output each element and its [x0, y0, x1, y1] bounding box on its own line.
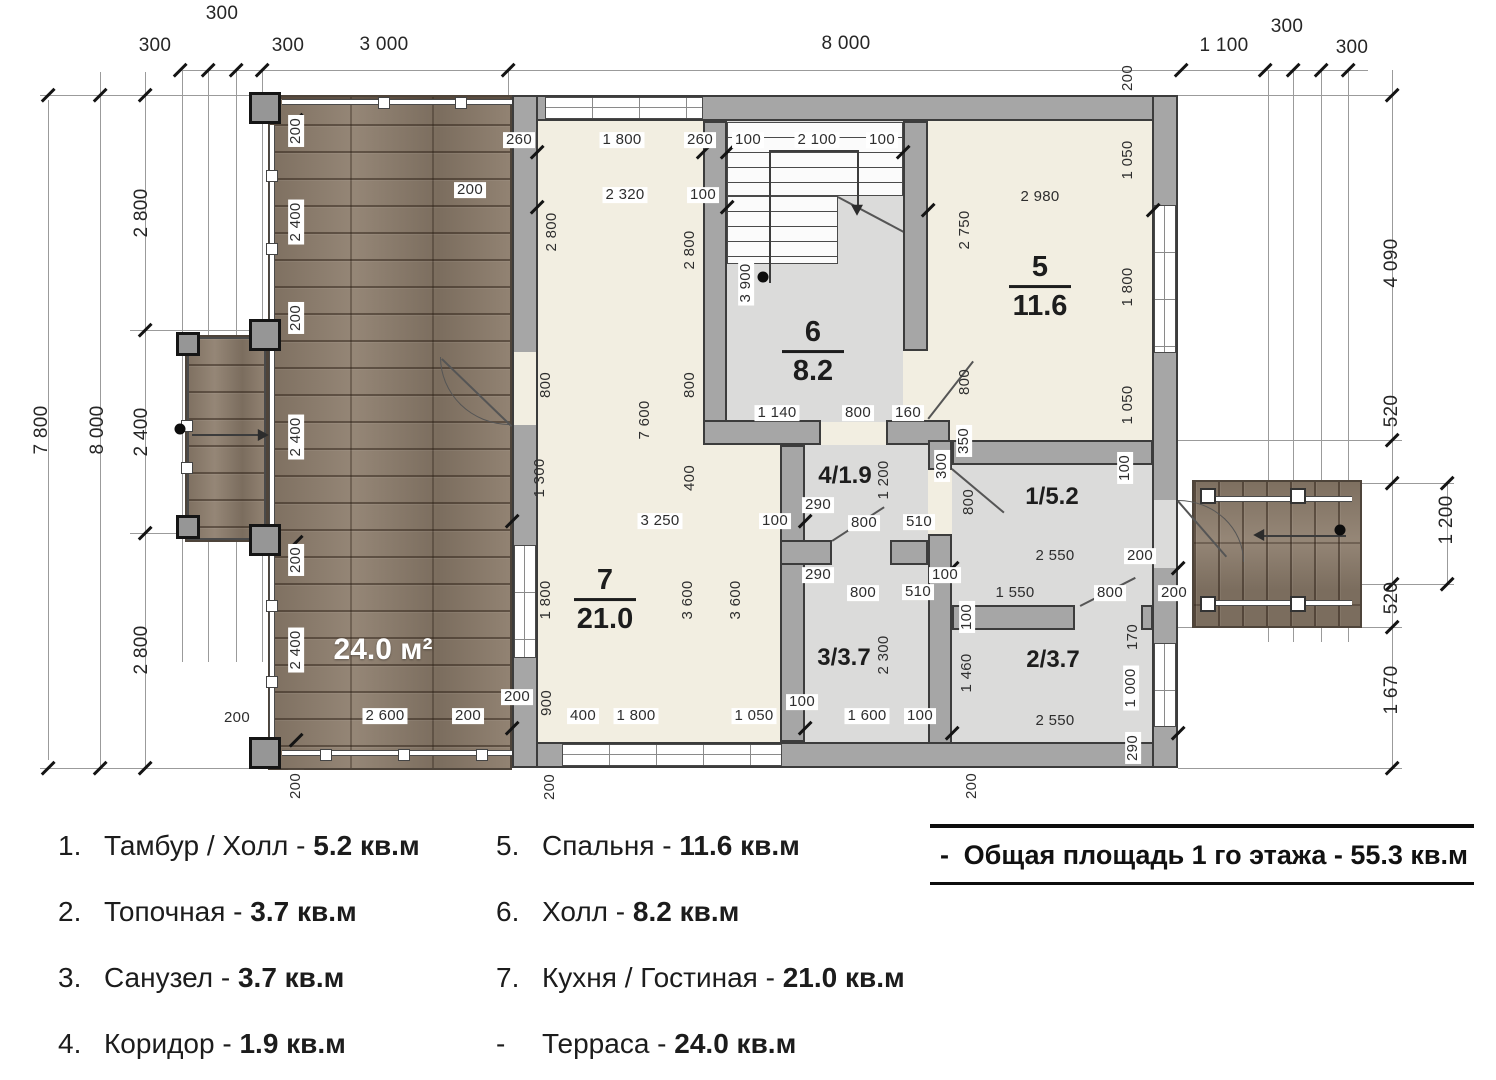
- legend-item-name: Холл -: [542, 896, 633, 927]
- room-3-sanuzel: 3/3.7: [817, 644, 870, 672]
- dim-label: 350: [956, 425, 972, 457]
- dim-label: 1 800: [1120, 267, 1136, 306]
- railing: [187, 337, 266, 540]
- dim-label: 2 600: [362, 708, 407, 724]
- total-area-box: - Общая площадь 1 го этажа - 55.3 кв.м: [930, 824, 1474, 885]
- legend-item-name: Топочная -: [104, 896, 250, 927]
- dim-label: 290: [802, 497, 834, 513]
- dim-label: 3 250: [637, 513, 682, 529]
- dim-label: 2 800: [544, 212, 560, 251]
- stairs: [727, 196, 838, 264]
- deck-post: [176, 332, 200, 356]
- dim-label: 1 550: [995, 585, 1034, 601]
- dim-label: 8 000: [821, 34, 870, 54]
- wall: [512, 95, 538, 768]
- stair-arrow-line: [1262, 535, 1346, 537]
- dim-label: 7 800: [32, 405, 52, 454]
- dim-label: 2 400: [288, 627, 304, 672]
- legend-item-area: 5.2 кв.м: [313, 830, 419, 861]
- dim-label: 1 050: [1120, 140, 1136, 179]
- dim-label: 200: [454, 182, 486, 198]
- dim-label: 3 600: [680, 580, 696, 619]
- dim-label: 2 100: [794, 132, 839, 148]
- dim-label: 1 600: [844, 708, 889, 724]
- dim-label: 100: [959, 601, 975, 633]
- railing-post: [1290, 488, 1306, 504]
- dim-label: 2 550: [1035, 713, 1074, 729]
- deck-post: [249, 737, 281, 769]
- dim-label: 200: [542, 774, 558, 800]
- dim-label: 800: [842, 405, 874, 421]
- wall: [703, 121, 727, 445]
- dim-label: 200: [288, 544, 304, 576]
- deck-post: [249, 319, 281, 351]
- dimension-line: [178, 70, 1368, 71]
- direction-dot: [1335, 525, 1346, 536]
- railing-baluster: [476, 749, 488, 761]
- dim-label: 2 400: [132, 407, 152, 456]
- dim-label: 200: [1124, 548, 1156, 564]
- dim-label: 2 320: [602, 187, 647, 203]
- railing: [269, 125, 275, 737]
- railing-baluster: [266, 676, 278, 688]
- railing-baluster: [398, 749, 410, 761]
- dim-label: 200: [288, 770, 304, 802]
- dim-label: 200: [288, 115, 304, 147]
- dim-label: 100: [866, 132, 898, 148]
- legend-item-area: 3.7 кв.м: [238, 962, 344, 993]
- legend-item-number: 6.: [496, 896, 542, 928]
- room-number: 6: [782, 317, 844, 347]
- room-area: 11.6: [1009, 292, 1071, 322]
- fraction-bar: [782, 351, 844, 354]
- dim-label: 8 000: [88, 405, 108, 454]
- railing: [1200, 496, 1352, 502]
- dim-label: 800: [682, 372, 698, 398]
- dim-label: 200: [452, 708, 484, 724]
- dim-label: 2 800: [132, 625, 152, 674]
- wall: [703, 420, 821, 445]
- dim-label: 260: [684, 132, 716, 148]
- stair-arrow-line: [769, 150, 858, 152]
- dim-label: 160: [892, 405, 924, 421]
- dim-label: 4 090: [1382, 238, 1402, 287]
- railing-baluster: [181, 462, 193, 474]
- dim-label: 2 400: [288, 414, 304, 459]
- railing: [1200, 600, 1352, 606]
- window: [1154, 643, 1176, 727]
- legend-item-area: 3.7 кв.м: [250, 896, 356, 927]
- dim-label: 100: [759, 513, 791, 529]
- railing-baluster: [320, 749, 332, 761]
- window: [514, 545, 536, 658]
- railing-baluster: [378, 97, 390, 109]
- dim-label: 3 600: [728, 580, 744, 619]
- arrow-down-icon: [851, 205, 863, 216]
- window: [562, 744, 782, 766]
- dim-label: 100: [687, 187, 719, 203]
- direction-dot: [758, 272, 769, 283]
- dim-label: 1 000: [1123, 665, 1139, 710]
- railing-baluster: [266, 243, 278, 255]
- total-area-text: Общая площадь 1 го этажа - 55.3 кв.м: [964, 840, 1468, 871]
- wall: [903, 121, 928, 351]
- legend-item-number: 5.: [496, 830, 542, 862]
- room-7-kuhnya-gostinaya: 721.0: [574, 565, 636, 635]
- dim-label: 1 050: [731, 708, 776, 724]
- dim-label: 1 460: [959, 653, 975, 692]
- dim-label: 2 980: [1020, 189, 1059, 205]
- legend-item: 5.Спальня - 11.6 кв.м: [496, 830, 800, 862]
- legend-item: -Терраса - 24.0 кв.м: [496, 1028, 796, 1060]
- dim-label: 1 200: [876, 460, 892, 499]
- legend-item-name: Спальня -: [542, 830, 679, 861]
- dimension-line: [1178, 440, 1402, 441]
- railing-post: [1200, 596, 1216, 612]
- stair-arrow-line: [769, 150, 771, 283]
- room-area: 8.2: [782, 357, 844, 387]
- floor-plan-drawing: 3003003003 0008 0001 1003003007 8008 000…: [0, 0, 1496, 810]
- railing-post: [1290, 596, 1306, 612]
- dimension-line: [40, 768, 270, 769]
- dim-label: 2 400: [288, 199, 304, 244]
- dim-label: 1 050: [1120, 385, 1136, 424]
- railing: [282, 99, 512, 105]
- door-opening: [1154, 500, 1176, 568]
- fraction-bar: [1009, 286, 1071, 289]
- dimension-line: [508, 70, 509, 98]
- dim-label: 1 800: [613, 708, 658, 724]
- dim-label: 1 670: [1382, 665, 1402, 714]
- dim-label: 300: [1271, 17, 1304, 37]
- railing-baluster: [266, 170, 278, 182]
- legend-item-area: 8.2 кв.м: [633, 896, 739, 927]
- legend-item-area: 24.0 кв.м: [674, 1028, 796, 1059]
- dim-label: 800: [847, 585, 879, 601]
- dimension-line: [1178, 768, 1402, 769]
- dim-label: 200: [964, 773, 980, 799]
- dim-label: 900: [539, 690, 555, 716]
- dim-label: 800: [538, 372, 554, 398]
- dim-label: 520: [1382, 582, 1402, 615]
- room-1-tambur-hall: 1/5.2: [1025, 483, 1078, 511]
- legend-item-number: 2.: [58, 896, 104, 928]
- deck-post: [249, 92, 281, 124]
- room-6-hall: 68.2: [782, 317, 844, 387]
- terrace-area-label: 24.0 м²: [334, 633, 433, 667]
- railing-baluster: [455, 97, 467, 109]
- dim-label: 3 000: [359, 35, 408, 55]
- dim-label: 200: [224, 710, 250, 726]
- dim-label: 800: [1094, 585, 1126, 601]
- direction-dot: [175, 424, 186, 435]
- legend-item-number: 7.: [496, 962, 542, 994]
- dim-label: 800: [957, 369, 973, 395]
- legend-item: 6.Холл - 8.2 кв.м: [496, 896, 739, 928]
- legend-item: 4.Коридор - 1.9 кв.м: [58, 1028, 346, 1060]
- legend-item-area: 21.0 кв.м: [783, 962, 905, 993]
- floor-plan-sheet: 3003003003 0008 0001 1003003007 8008 000…: [0, 0, 1496, 1080]
- dim-label: 300: [934, 450, 950, 482]
- dim-label: 400: [682, 465, 698, 491]
- dim-label: 800: [961, 489, 977, 515]
- dim-label: 300: [1336, 38, 1369, 58]
- dim-label: 510: [903, 514, 935, 530]
- dim-label: 300: [272, 36, 305, 56]
- dim-label: 510: [902, 584, 934, 600]
- room-number: 5: [1009, 252, 1071, 282]
- legend-item: 7.Кухня / Гостиная - 21.0 кв.м: [496, 962, 905, 994]
- dim-label: 200: [501, 689, 533, 705]
- dim-label: 100: [732, 132, 764, 148]
- room-5-spalnya: 511.6: [1009, 252, 1071, 322]
- dim-label: 1 200: [1437, 495, 1457, 544]
- room-number: 7: [574, 565, 636, 595]
- dimension-line: [1362, 483, 1454, 484]
- room-4-koridor: 4/1.9: [818, 462, 871, 490]
- deck-post: [249, 524, 281, 556]
- legend-item-name: Тамбур / Холл -: [104, 830, 313, 861]
- dim-label: 100: [1117, 452, 1133, 484]
- dim-label: 2 800: [132, 188, 152, 237]
- dim-label: 1 800: [599, 132, 644, 148]
- wall: [780, 540, 832, 565]
- legend-item-name: Терраса -: [542, 1028, 674, 1059]
- dim-label: 300: [206, 4, 239, 24]
- legend-item-area: 1.9 кв.м: [239, 1028, 345, 1059]
- railing-post: [1200, 488, 1216, 504]
- dim-label: 1 300: [532, 458, 548, 497]
- dim-label: 100: [786, 694, 818, 710]
- dim-label: 260: [503, 132, 535, 148]
- dimension-line: [1178, 95, 1394, 96]
- dim-label: 170: [1125, 624, 1141, 650]
- legend-item: 1.Тамбур / Холл - 5.2 кв.м: [58, 830, 420, 862]
- dim-label: 2 550: [1035, 548, 1074, 564]
- dim-label: 1 140: [754, 405, 799, 421]
- dim-label: 2 300: [876, 635, 892, 674]
- dim-label: 520: [1382, 395, 1402, 428]
- dim-label: 200: [1120, 65, 1136, 91]
- wall: [890, 540, 928, 565]
- legend-item-name: Коридор -: [104, 1028, 239, 1059]
- legend-item-area: 11.6 кв.м: [679, 830, 799, 861]
- room-area: 21.0: [574, 605, 636, 635]
- legend-item-number: 1.: [58, 830, 104, 862]
- dim-label: 290: [1125, 732, 1141, 764]
- window: [545, 97, 703, 119]
- dim-label: 100: [929, 567, 961, 583]
- door-opening: [514, 352, 536, 425]
- total-area-dash: -: [940, 840, 949, 871]
- dimension-line: [182, 70, 183, 662]
- dim-label: 1 800: [538, 580, 554, 619]
- legend-item-number: 3.: [58, 962, 104, 994]
- legend-item-number: 4.: [58, 1028, 104, 1060]
- railing-baluster: [266, 600, 278, 612]
- dim-label: 300: [139, 36, 172, 56]
- dim-label: 290: [802, 567, 834, 583]
- arrow-left-icon: [1253, 529, 1264, 541]
- dim-label: 3 900: [738, 260, 754, 305]
- dim-label: 200: [1158, 585, 1190, 601]
- wall: [1141, 605, 1153, 630]
- fraction-bar: [574, 599, 636, 602]
- dim-label: 100: [904, 708, 936, 724]
- dim-label: 7 600: [637, 400, 653, 439]
- dimension-line: [1362, 584, 1454, 585]
- window: [1154, 205, 1176, 353]
- dim-label: 2 800: [682, 230, 698, 269]
- dim-label: 400: [567, 708, 599, 724]
- dim-label: 200: [288, 302, 304, 334]
- room-2-topochnaya: 2/3.7: [1026, 646, 1079, 674]
- legend-item-name: Кухня / Гостиная -: [542, 962, 783, 993]
- legend-item: 2.Топочная - 3.7 кв.м: [58, 896, 357, 928]
- legend-item-number: -: [496, 1028, 542, 1060]
- stair-arrow-line: [192, 434, 260, 436]
- dim-label: 2 750: [957, 210, 973, 249]
- arrow-right-icon: [258, 429, 269, 441]
- dimension-line: [130, 330, 268, 331]
- legend-item-name: Санузел -: [104, 962, 238, 993]
- stair-arrow-line: [857, 150, 859, 205]
- dim-label: 800: [848, 515, 880, 531]
- legend-item: 3.Санузел - 3.7 кв.м: [58, 962, 344, 994]
- dim-label: 1 100: [1199, 36, 1248, 56]
- deck-post: [176, 515, 200, 539]
